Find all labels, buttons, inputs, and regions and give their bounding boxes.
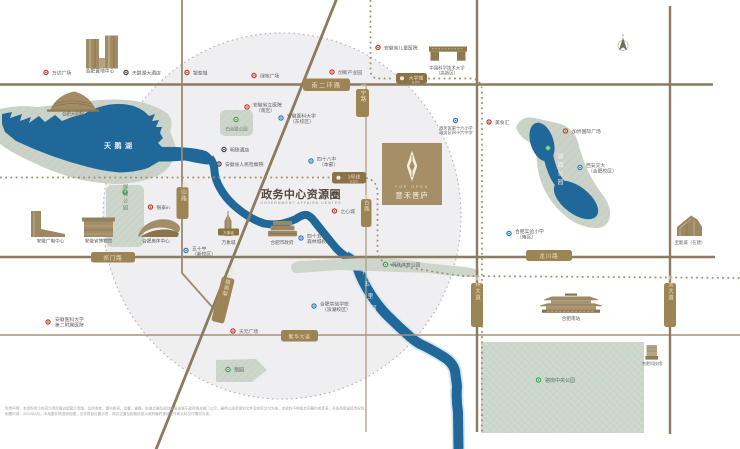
svg-text:骆岗中央公园: 骆岗中央公园 xyxy=(545,377,575,384)
svg-text:（南区）: （南区） xyxy=(256,107,275,114)
svg-text:合肥实验学校: 合肥实验学校 xyxy=(320,301,349,308)
svg-text:宝能城（在建）: 宝能城（在建） xyxy=(675,239,706,246)
svg-text:南二环路: 南二环路 xyxy=(311,81,341,89)
svg-text:包河大道: 包河大道 xyxy=(667,274,674,302)
svg-text:西安交大: 西安交大 xyxy=(586,162,605,169)
svg-text:合肥南站: 合肥南站 xyxy=(562,315,581,322)
svg-text:安徽省人民检察院: 安徽省人民检察院 xyxy=(225,161,264,168)
svg-text:怀宁路: 怀宁路 xyxy=(360,83,367,103)
svg-text:银泰in: 银泰in xyxy=(157,204,171,211)
svg-text:十: 十 xyxy=(361,268,367,276)
svg-text:制图时间：2021年8月。本地图非精准测绘图，仅作项目位置示: 制图时间：2021年8月。本地图非精准测绘图，仅作项目位置示意，周边交通及配套信… xyxy=(5,411,213,416)
svg-text:安徽省博物馆: 安徽省博物馆 xyxy=(85,238,113,245)
svg-text:（新校区）: （新校区） xyxy=(192,250,216,257)
svg-text:五: 五 xyxy=(364,281,370,288)
svg-text:（东校区）: （东校区） xyxy=(290,118,314,125)
svg-text:（合肥校区）: （合肥校区） xyxy=(588,167,617,174)
svg-text:明珠酒店: 明珠酒店 xyxy=(230,146,249,153)
svg-text:石台路: 石台路 xyxy=(363,194,369,212)
svg-text:合肥实验小学: 合肥实验小学 xyxy=(515,228,544,235)
svg-text:绿轴公园: 绿轴公园 xyxy=(122,183,128,212)
svg-text:之心城: 之心城 xyxy=(341,208,356,215)
svg-text:天鹅湖大酒店: 天鹅湖大酒店 xyxy=(132,69,161,76)
svg-text:祁门路: 祁门路 xyxy=(103,254,123,262)
svg-text:安徽省立医院: 安徽省立医院 xyxy=(253,102,282,109)
svg-text:徽州大道: 徽州大道 xyxy=(474,274,481,302)
svg-text:河: 河 xyxy=(371,304,377,312)
svg-text:塘西公园: 塘西公园 xyxy=(556,152,563,187)
svg-text:TOP OFES: TOP OFES xyxy=(395,185,429,189)
svg-text:在建中: 在建中 xyxy=(412,80,421,84)
svg-text:在建中: 在建中 xyxy=(350,180,359,184)
svg-text:明珠体育公园: 明珠体育公园 xyxy=(392,261,421,268)
svg-text:繁华大道: 繁华大道 xyxy=(288,333,310,340)
svg-text:合肥奥体中心: 合肥奥体中心 xyxy=(142,238,170,245)
svg-text:潜山路: 潜山路 xyxy=(180,181,187,203)
svg-text:政务中心资源圈: 政务中心资源圈 xyxy=(261,187,341,201)
svg-text:万象城: 万象城 xyxy=(223,230,234,235)
svg-text:安徽医科大学: 安徽医科大学 xyxy=(55,316,84,323)
svg-text:五十中: 五十中 xyxy=(192,245,207,252)
svg-text:政务区四十六中学: 政务区四十六中学 xyxy=(439,129,473,136)
svg-text:天鹅湖: 天鹅湖 xyxy=(104,141,136,150)
svg-text:森林城校区: 森林城校区 xyxy=(307,238,331,245)
svg-text:美食汇: 美食汇 xyxy=(495,119,510,126)
svg-text:翡园: 翡园 xyxy=(234,366,244,373)
svg-text:第二附属医院: 第二附属医院 xyxy=(55,321,84,328)
svg-text:（滨湖校区）: （滨湖校区） xyxy=(322,306,351,313)
svg-text:里: 里 xyxy=(368,293,374,300)
svg-text:（高新区）: （高新区） xyxy=(436,69,458,76)
svg-text:万达广场: 万达广场 xyxy=(52,69,71,76)
svg-text:安徽医科大学: 安徽医科大学 xyxy=(287,113,316,120)
svg-text:免责声明：本资料所示内容为项目周边配套示意图，仅供参考。图中: 免责声明：本资料所示内容为项目周边配套示意图，仅供参考。图中距离、位置、道路、轨… xyxy=(5,406,368,411)
svg-text:意禾晋庐: 意禾晋庐 xyxy=(395,190,428,200)
svg-text:创新产业园: 创新产业园 xyxy=(338,69,362,76)
svg-text:合肥市政府: 合肥市政府 xyxy=(271,239,294,246)
svg-text:加侨国际广场: 加侨国际广场 xyxy=(572,128,601,135)
svg-text:万象城: 万象城 xyxy=(222,239,236,246)
svg-text:天元广场: 天元广场 xyxy=(239,328,258,335)
svg-text:（本部）: （本部） xyxy=(319,161,338,168)
svg-text:合肥置地中心: 合肥置地中心 xyxy=(86,68,115,75)
svg-text:安徽省儿童医院: 安徽省儿童医院 xyxy=(384,44,418,51)
svg-text:银泰城: 银泰城 xyxy=(193,69,208,76)
svg-text:石台路公园: 石台路公园 xyxy=(226,126,249,133)
svg-text:GOVERNMENT AFFAIRS CENTER: GOVERNMENT AFFAIRS CENTER xyxy=(260,201,342,205)
svg-text:安徽广电中心: 安徽广电中心 xyxy=(37,238,65,245)
svg-text:合肥大剧院: 合肥大剧院 xyxy=(62,111,85,118)
svg-text:四十八中: 四十八中 xyxy=(317,156,336,163)
svg-text:龙川路: 龙川路 xyxy=(539,252,559,260)
svg-text:绿地广场: 绿地广场 xyxy=(260,72,279,79)
svg-text:四十五中: 四十五中 xyxy=(307,233,326,240)
svg-text:（南区）: （南区） xyxy=(517,233,536,240)
svg-text:合肥科技馆: 合肥科技馆 xyxy=(642,360,662,366)
